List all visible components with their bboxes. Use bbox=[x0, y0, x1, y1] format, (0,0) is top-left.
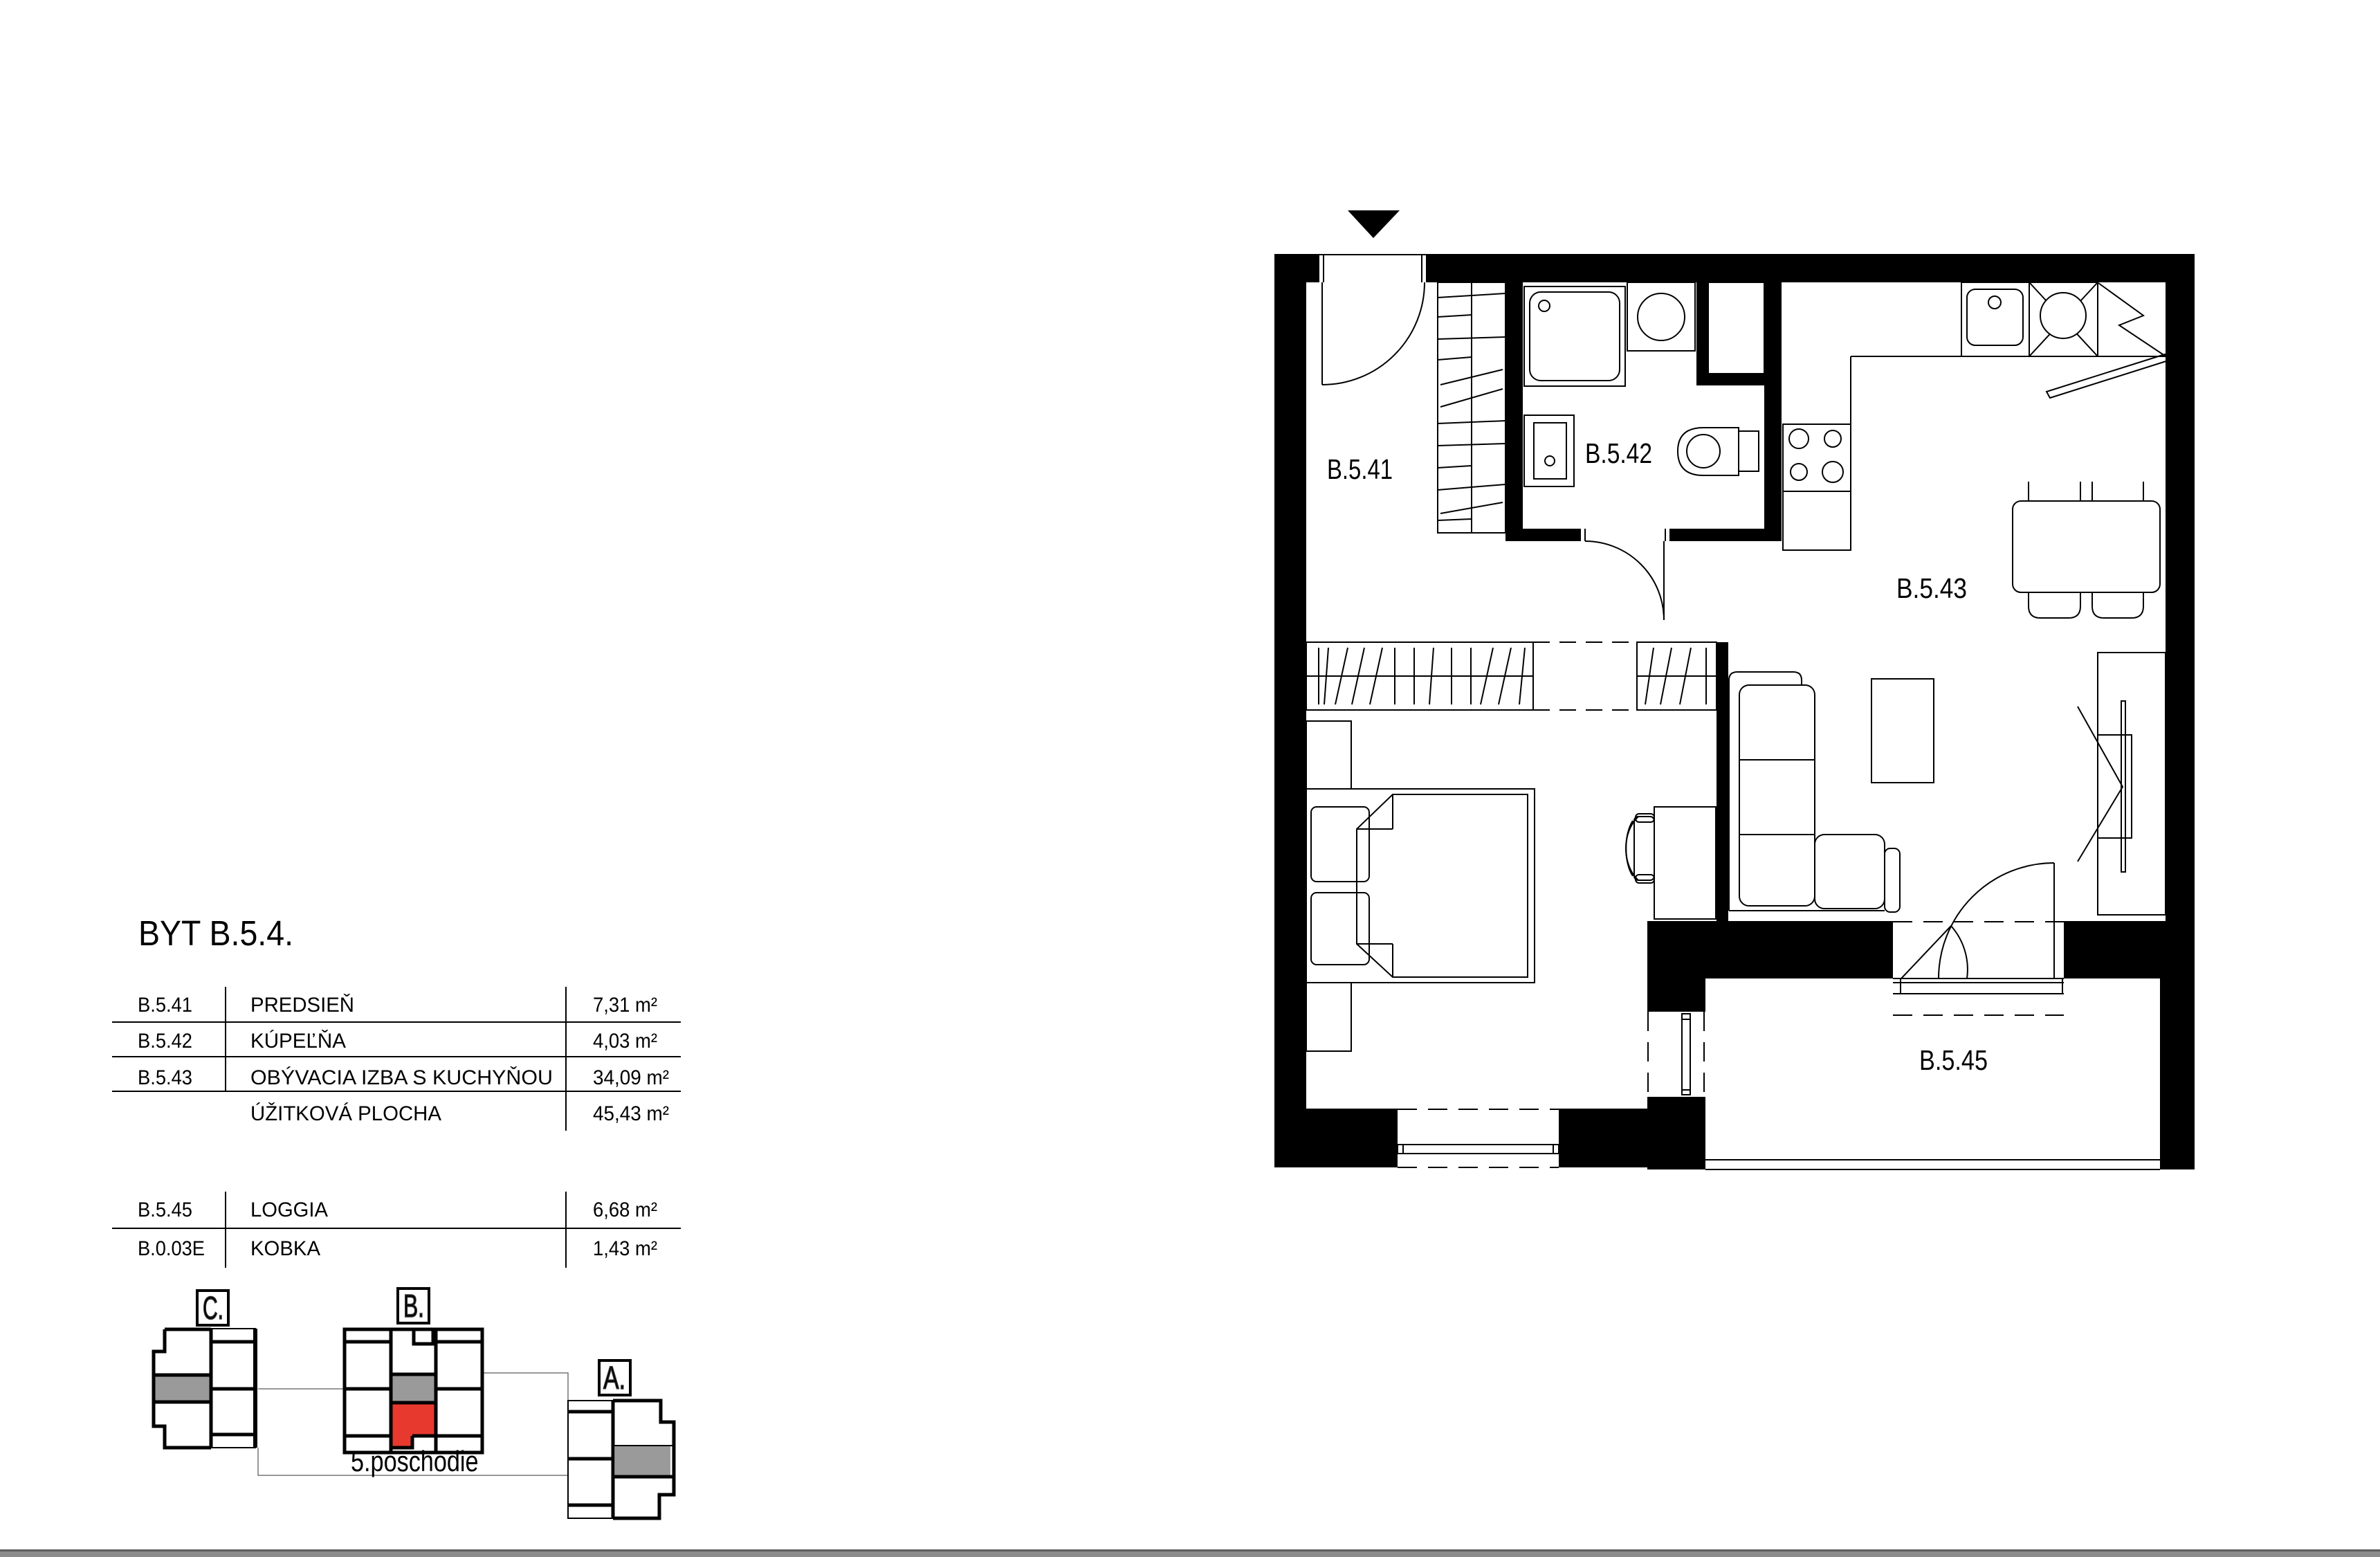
svg-text:ÚŽITKOVÁ PLOCHA: ÚŽITKOVÁ PLOCHA bbox=[250, 1102, 441, 1125]
svg-text:B.5.45: B.5.45 bbox=[1919, 1044, 1988, 1076]
svg-text:KÚPEĽŇA: KÚPEĽŇA bbox=[250, 1030, 346, 1053]
svg-text:4,03 m²: 4,03 m² bbox=[593, 1030, 657, 1053]
svg-text:34,09 m²: 34,09 m² bbox=[593, 1066, 669, 1089]
svg-text:KOBKA: KOBKA bbox=[250, 1237, 320, 1260]
svg-text:6,68 m²: 6,68 m² bbox=[593, 1199, 657, 1221]
svg-text:LOGGIA: LOGGIA bbox=[250, 1199, 328, 1221]
svg-text:PREDSIEŇ: PREDSIEŇ bbox=[250, 994, 354, 1017]
svg-text:B.5.42: B.5.42 bbox=[138, 1030, 192, 1053]
svg-text:7,31 m²: 7,31 m² bbox=[593, 994, 657, 1017]
svg-text:B.: B. bbox=[403, 1288, 424, 1324]
svg-text:B.5.41: B.5.41 bbox=[1327, 453, 1393, 485]
svg-text:BYT B.5.4.: BYT B.5.4. bbox=[138, 913, 293, 953]
svg-text:OBÝVACIA IZBA S KUCHYŇOU: OBÝVACIA IZBA S KUCHYŇOU bbox=[250, 1066, 553, 1089]
svg-text:B.5.42: B.5.42 bbox=[1585, 437, 1652, 469]
svg-text:45,43 m²: 45,43 m² bbox=[593, 1102, 669, 1125]
svg-text:5.poschodie: 5.poschodie bbox=[351, 1446, 479, 1478]
svg-text:A.: A. bbox=[603, 1360, 625, 1396]
svg-text:C.: C. bbox=[203, 1290, 223, 1326]
svg-text:B.0.03E: B.0.03E bbox=[138, 1237, 205, 1260]
svg-text:1,43 m²: 1,43 m² bbox=[593, 1237, 657, 1260]
svg-text:B.5.43: B.5.43 bbox=[138, 1066, 192, 1089]
svg-text:B.5.43: B.5.43 bbox=[1896, 572, 1967, 604]
svg-text:B.5.45: B.5.45 bbox=[138, 1199, 192, 1221]
svg-text:B.5.41: B.5.41 bbox=[138, 994, 192, 1017]
